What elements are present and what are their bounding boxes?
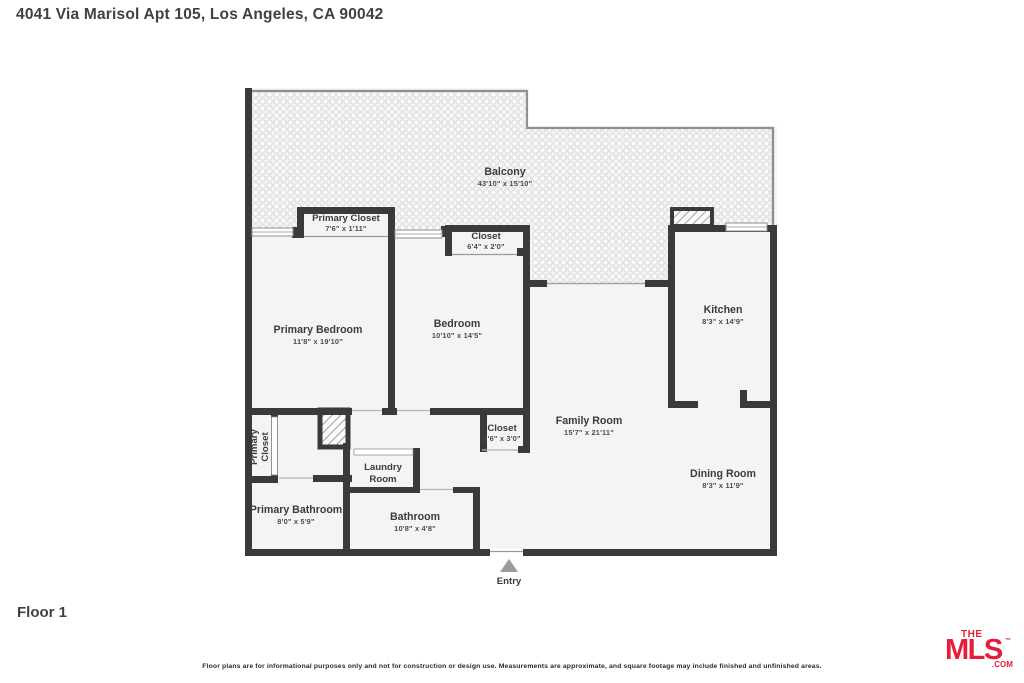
room-dims-family-room: 15'7" x 21'11" [564,428,614,437]
room-dims-primary-bathroom: 8'0" x 5'9" [277,517,315,526]
entry-arrow-icon [500,559,518,572]
room-dims-closet-small: 3'6" x 3'0" [483,434,521,443]
door-opening [397,408,430,415]
room-label-balcony: Balcony [484,166,525,178]
room-label-closet: Closet [471,231,501,242]
room-dims-balcony: 43'10" x 15'10" [478,179,533,188]
room-label-bathroom: Bathroom [390,511,440,523]
mls-logo-com: .COM [992,661,1013,669]
room-dims-kitchen: 8'3" x 14'9" [702,317,744,326]
room-label-primary-closet-vertical-1: Primary [249,428,260,464]
hatched-fixture [320,410,348,447]
disclaimer-text: Floor plans are for informational purpos… [0,663,1024,670]
wall-segment [388,233,395,415]
floor-label: Floor 1 [17,604,67,621]
wall-segment [473,487,480,549]
wall-segment [245,549,490,556]
mls-logo-tm: ™ [1005,638,1011,644]
room-label-laundry-1: Laundry [364,462,403,473]
room-label-family-room: Family Room [556,415,623,427]
room-dims-closet: 6'4" x 2'0" [467,242,505,251]
laundry-doors [354,449,413,455]
wall-segment [523,549,777,556]
wall-segment [770,225,777,556]
room-label-laundry-2: Room [369,474,396,485]
room-dims-primary-bedroom: 11'8" x 19'10" [293,337,343,346]
room-label-primary-closet: Primary Closet [312,213,381,224]
wall-segment [382,408,397,415]
wall-segment [245,408,352,415]
wall-segment [480,412,487,452]
floor-plan-svg: Balcony 43'10" x 15'10" Primary Closet 7… [0,0,1024,683]
closet-slider [272,417,278,475]
room-label-kitchen: Kitchen [704,304,743,316]
wall-segment [413,448,420,493]
wall-segment [645,280,675,287]
room-label-closet-small: Closet [487,423,517,434]
wall-segment [245,88,252,556]
wall-segment [668,225,675,408]
room-dims-dining-room: 8'3" x 11'9" [702,481,744,490]
floor-plan-page: 4041 Via Marisol Apt 105, Los Angeles, C… [0,0,1024,683]
room-label-dining-room: Dining Room [690,468,756,480]
mls-logo: THE MLS ™ .COM [945,630,1017,672]
wall-segment [523,225,530,452]
wall-segment [350,487,420,493]
door-opening [352,408,382,415]
room-dims-bathroom: 10'8" x 4'8" [394,524,436,533]
room-dims-primary-closet: 7'6" x 1'11" [325,224,367,233]
room-label-primary-closet-vertical-2: Closet [260,432,271,462]
room-label-bedroom: Bedroom [434,318,481,330]
wall-segment [245,476,278,483]
wall-segment [343,443,350,556]
wall-segment [517,248,525,256]
room-dims-bedroom: 10'10" x 14'5" [432,331,483,340]
wall-segment [740,401,777,408]
hatched-fixture [672,209,712,226]
wall-segment [668,401,698,408]
room-label-primary-bathroom: Primary Bathroom [250,504,342,516]
wall-segment [518,446,530,453]
wall-segment [297,207,304,238]
room-label-primary-bedroom: Primary Bedroom [274,324,363,336]
entry-opening [490,549,523,556]
entry-label: Entry [497,576,522,587]
wall-segment [528,280,547,287]
